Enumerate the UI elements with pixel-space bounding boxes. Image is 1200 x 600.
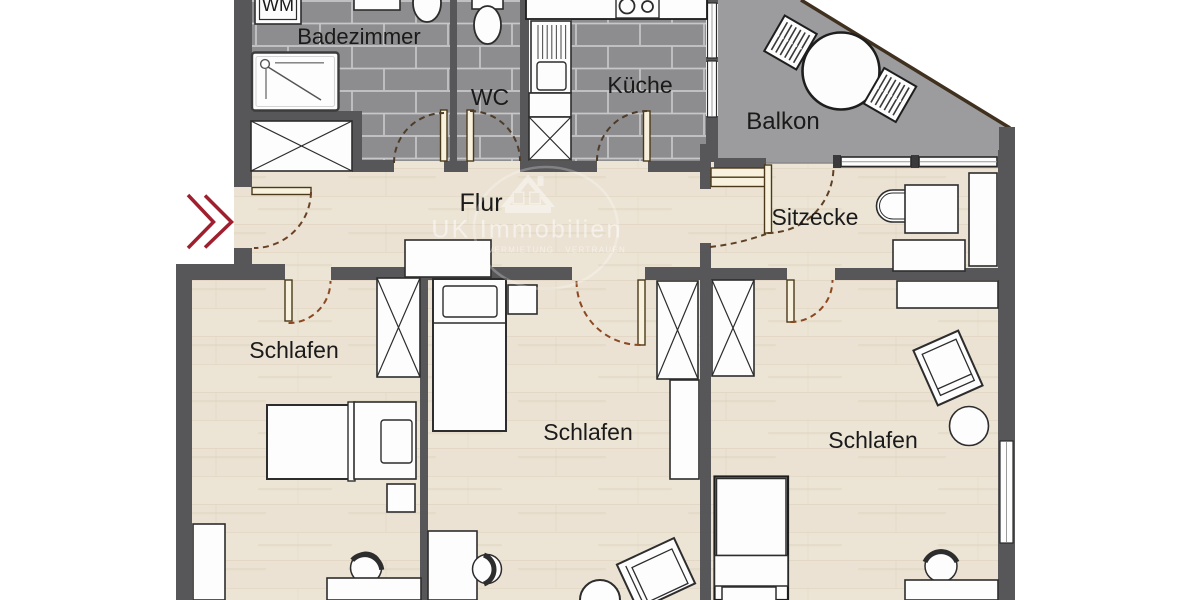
svg-text:Badezimmer: Badezimmer	[297, 24, 420, 49]
svg-text:VERMIETUNG · VERTRAUEN: VERMIETUNG · VERTRAUEN	[488, 246, 626, 255]
svg-text:Sitzecke: Sitzecke	[772, 204, 859, 230]
svg-text:Schlafen: Schlafen	[543, 419, 633, 445]
svg-text:Küche: Küche	[607, 72, 672, 98]
svg-text:Schlafen: Schlafen	[828, 427, 918, 453]
svg-text:WM: WM	[262, 0, 294, 15]
svg-text:Schlafen: Schlafen	[249, 337, 339, 363]
svg-text:WC: WC	[471, 84, 509, 110]
svg-text:Balkon: Balkon	[746, 108, 819, 135]
svg-text:UK Immobilien: UK Immobilien	[431, 216, 622, 244]
